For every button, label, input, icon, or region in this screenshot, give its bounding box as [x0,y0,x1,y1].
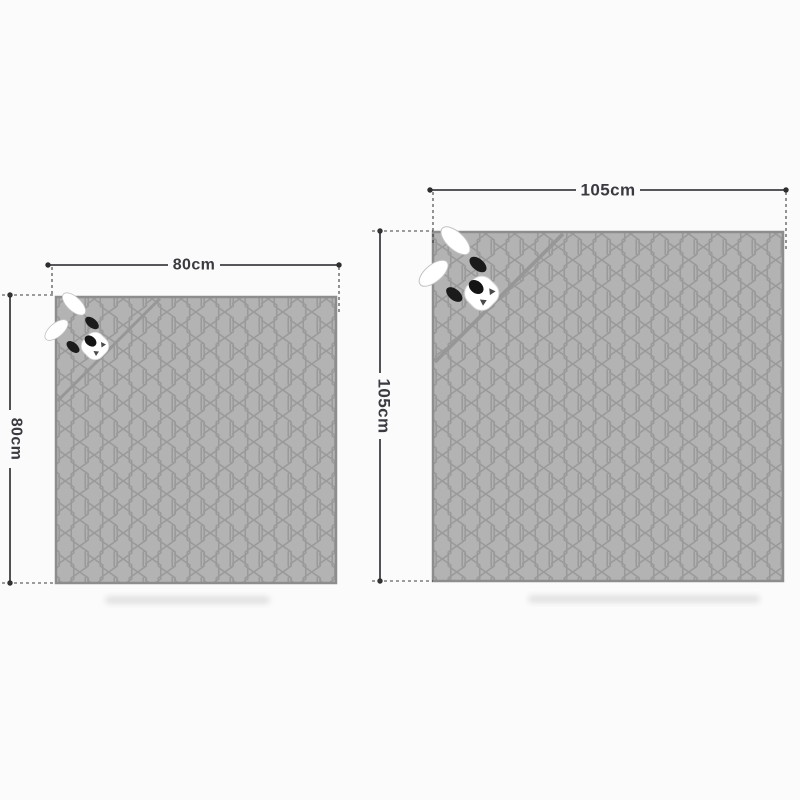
large-blanket-width-label: 105cm [581,181,636,200]
small-blanket-width-label: 80cm [173,257,216,274]
dimension-endpoint [45,262,50,267]
size-diagram-canvas: 80cm 80cm 105cm [0,0,800,800]
large-blanket-height-label: 105cm [375,379,394,434]
large-blanket-shadow [528,595,760,603]
dimension-endpoint [427,187,432,192]
dimension-endpoint [783,187,788,192]
small-blanket-shadow [105,596,270,604]
blanket-size-diagram: 80cm 80cm 105cm [0,0,800,800]
dimension-endpoint [336,262,341,267]
small-blanket-height-label: 80cm [8,418,25,461]
large-blanket [415,222,783,581]
small-blanket [41,289,336,583]
